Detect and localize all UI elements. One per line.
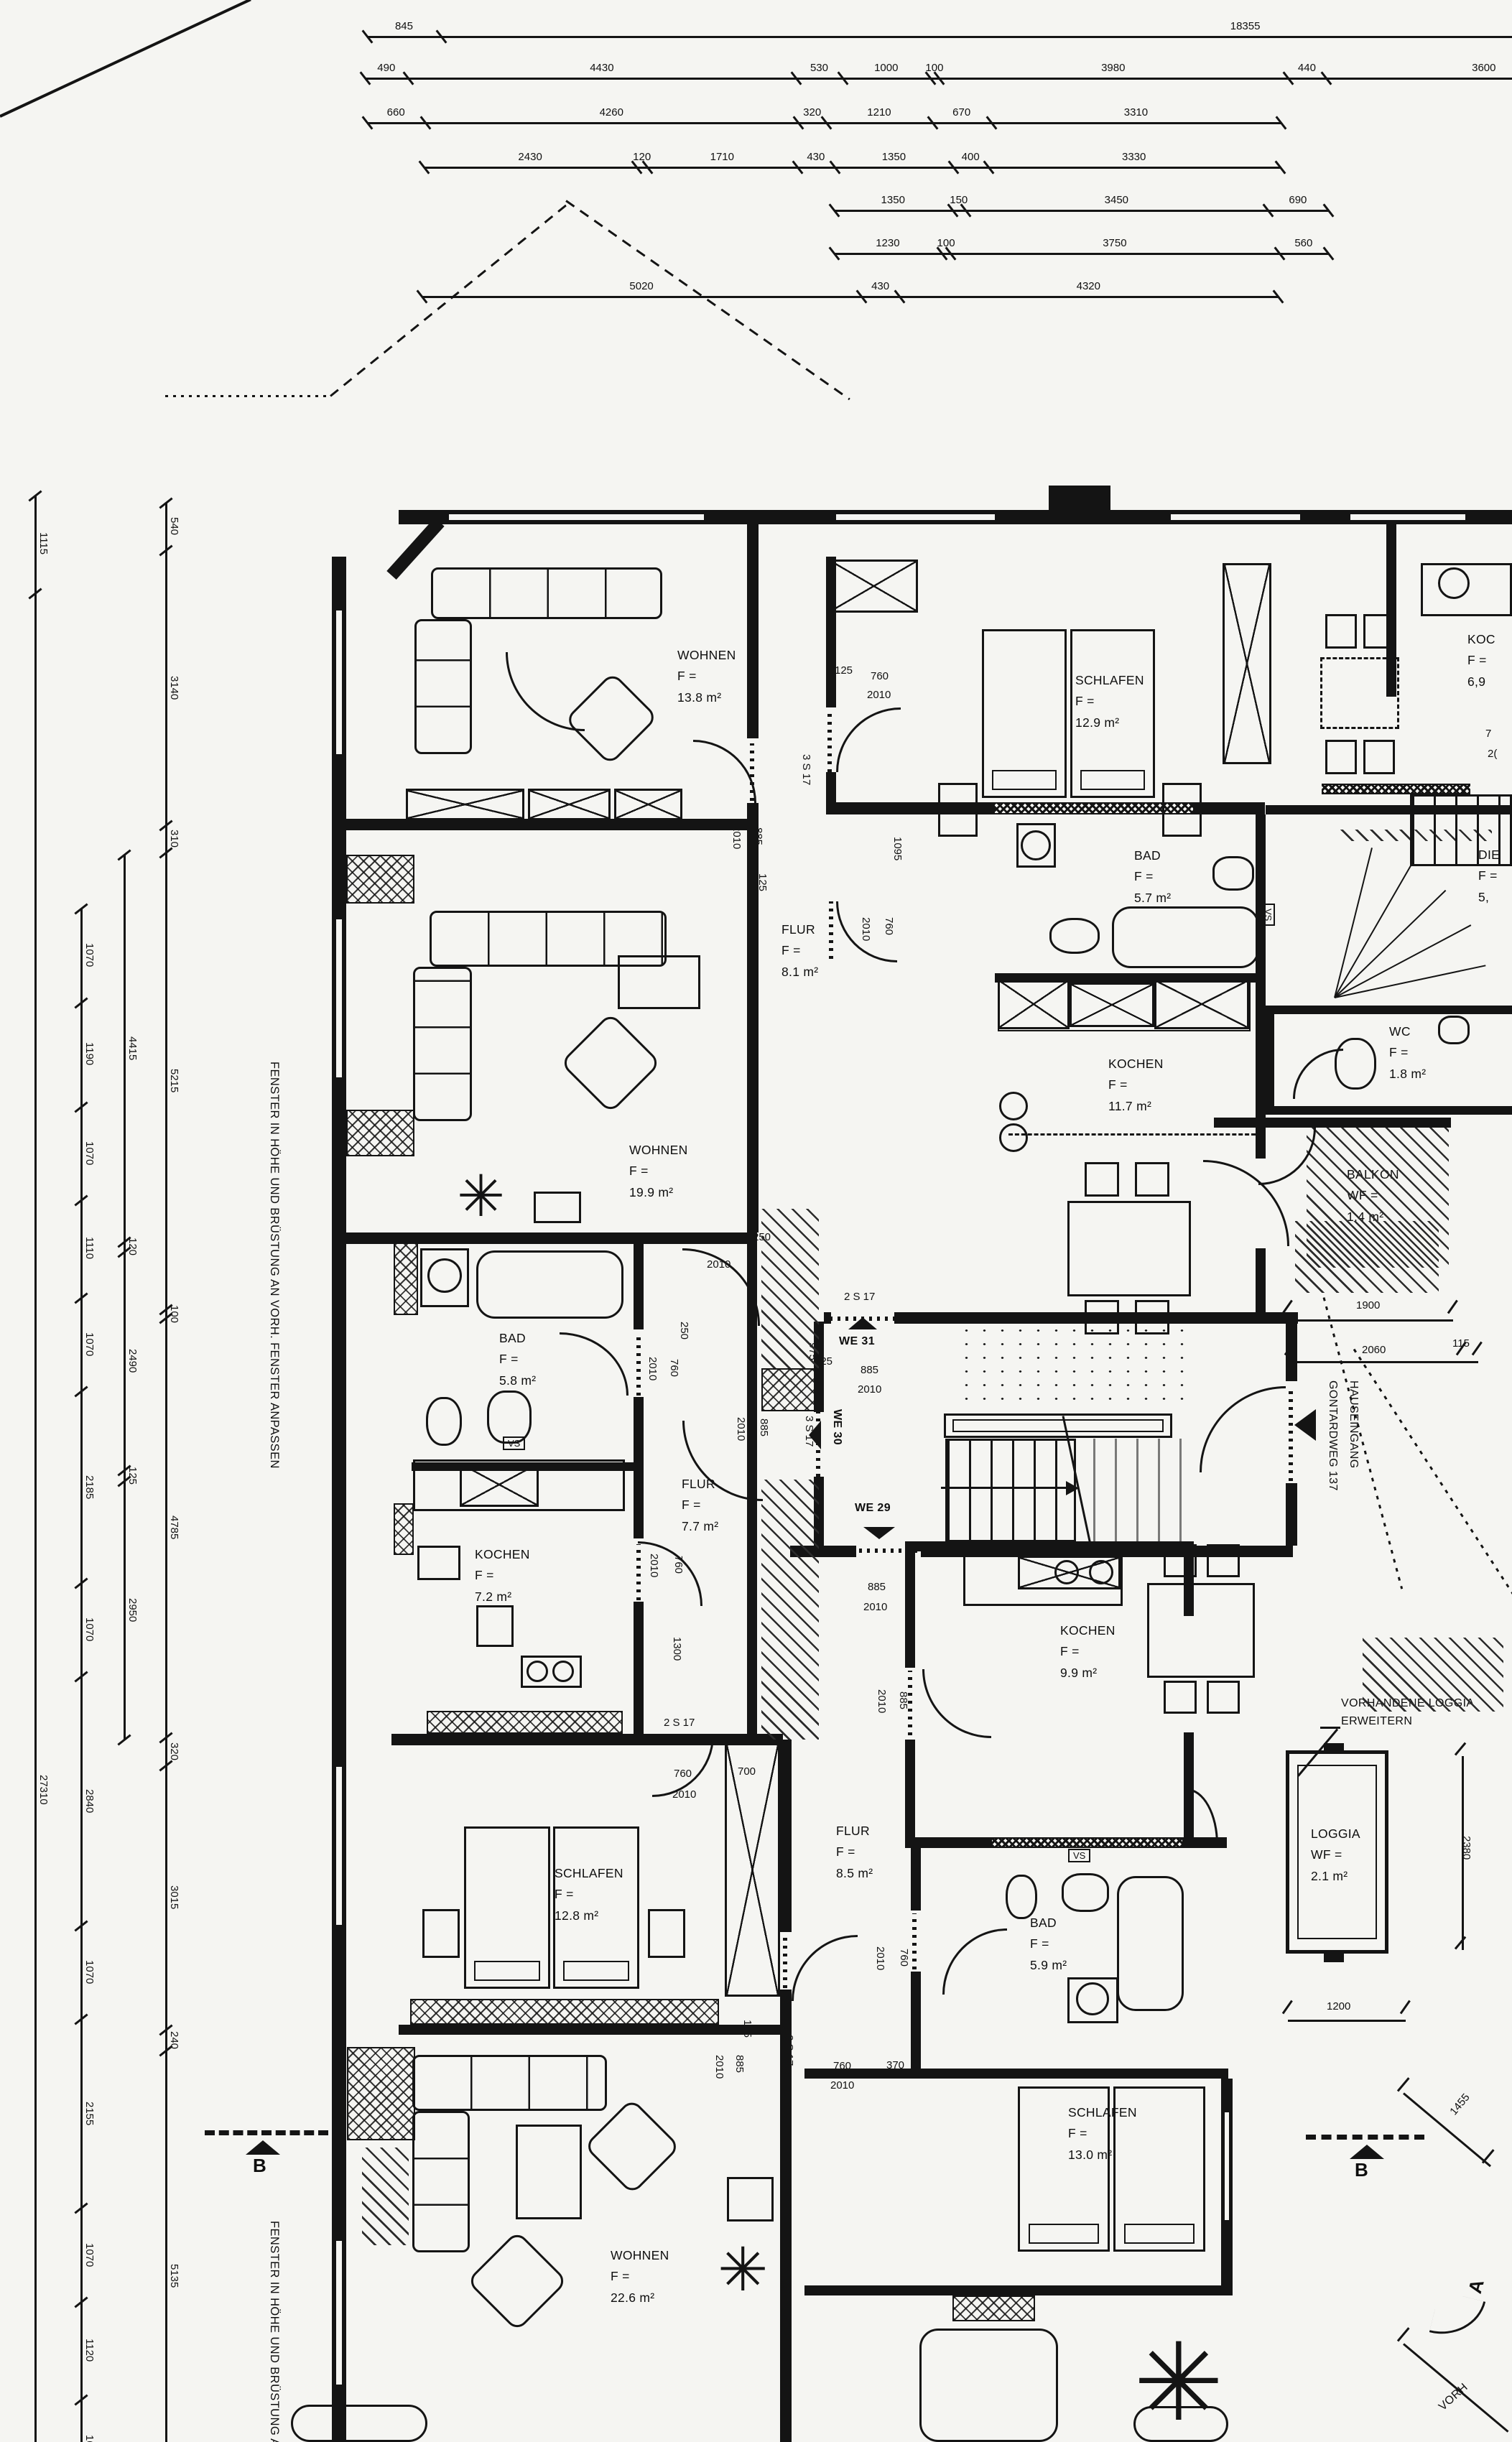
section-arrow-b-left-icon <box>246 2140 280 2155</box>
dim-label: 3 S 17 <box>804 1416 815 1447</box>
room-label-line: WOHNEN <box>611 2245 669 2266</box>
sofa <box>413 967 472 1121</box>
toilet <box>426 1397 462 1446</box>
room-label-line: 11.7 m² <box>1108 1096 1164 1117</box>
dim-value: 670 <box>952 107 970 118</box>
dim-value: 5215 <box>169 1069 180 1092</box>
crossed-box <box>830 560 918 613</box>
nightstand <box>422 1909 460 1958</box>
wall <box>399 2025 780 2035</box>
fenster-note-lower: FENSTER IN HÖHE UND BRÜSTUNG AN VORH. FE… <box>264 2221 283 2442</box>
loggia-tab <box>1324 1743 1344 1752</box>
dim-label: 2010 <box>830 2080 854 2091</box>
dim-tick <box>1472 1342 1483 1356</box>
kitchen-counter <box>1421 563 1512 616</box>
dim-value: 1115 <box>38 532 49 554</box>
dim-value: 1070 <box>84 2435 95 2442</box>
room-label-koc_partial: KOCF =6,9 <box>1467 629 1495 692</box>
dim-value: 1210 <box>867 107 891 118</box>
room-label-line: WOHNEN <box>629 1140 688 1161</box>
wall <box>1256 814 1266 1159</box>
dim-label: 2 S 17 <box>664 1717 695 1728</box>
toilet <box>1335 1038 1376 1090</box>
door-arc <box>560 1332 629 1396</box>
door-arc <box>1187 1788 1218 1844</box>
stove-burner <box>1054 1560 1079 1584</box>
door-sill <box>1289 1386 1293 1481</box>
chair <box>1085 1300 1119 1334</box>
dining-table <box>1067 1201 1191 1296</box>
room-label-line: F = <box>1389 1042 1426 1063</box>
room-label-line: KOCHEN <box>475 1544 530 1565</box>
door-arc <box>792 1935 858 2001</box>
chair <box>1135 1162 1169 1197</box>
dim-value: 530 <box>810 62 828 73</box>
dim-row-line <box>424 167 1280 169</box>
toilet <box>1006 1875 1037 1919</box>
crosshatch-shaft <box>952 2295 1035 2321</box>
sofa-partial <box>1133 2406 1228 2442</box>
armchair <box>560 1012 661 1113</box>
loggia-inner <box>1297 1765 1377 1939</box>
wall <box>911 1848 921 1911</box>
crosshatch-shaft <box>761 1368 819 1411</box>
dim-value: 540 <box>169 517 180 535</box>
room-label-line: F = <box>836 1842 873 1862</box>
window <box>1171 513 1300 521</box>
window <box>836 513 995 521</box>
dim-value: 4430 <box>590 62 613 73</box>
dim-row-line <box>834 210 1328 212</box>
dim-value: 400 <box>962 152 980 162</box>
room-label-line: 1.8 m² <box>1389 1064 1426 1085</box>
dim-label: 125 <box>835 665 853 676</box>
wall <box>905 1740 915 1848</box>
washer-drum <box>427 1258 462 1293</box>
armchair <box>583 2098 680 2195</box>
room-label-kochen117: KOCHENF =11.7 m² <box>1108 1054 1164 1117</box>
coffee-table <box>516 2125 582 2219</box>
bed <box>1018 2086 1110 2252</box>
door-sill <box>908 1671 912 1735</box>
dim-label: 2010 <box>875 1946 886 1970</box>
loggia-note-line2: ERWEITERN <box>1341 1713 1475 1731</box>
wall <box>905 1551 915 1668</box>
chair <box>1363 614 1395 649</box>
dim-value: 1000 <box>874 62 898 73</box>
dim-value: 2155 <box>84 2102 95 2125</box>
dim-tick <box>1397 2327 1410 2341</box>
dim-value: 310 <box>169 830 180 848</box>
dim-tick <box>1447 1300 1458 1314</box>
wall <box>804 2069 1228 2079</box>
dim-tick <box>1282 2000 1293 2015</box>
stair-flight <box>1093 1439 1187 1542</box>
nightstand <box>1162 783 1202 837</box>
dining-table <box>1147 1583 1255 1678</box>
door-sill <box>816 1412 820 1477</box>
dim-value: 560 <box>1294 238 1312 249</box>
dim-label: 885 <box>898 1691 909 1709</box>
bed <box>1070 629 1155 798</box>
floorplan-canvas: FENSTER IN HÖHE UND BRÜSTUNG AN VORH. FE… <box>0 0 1512 2442</box>
room-label-line: 5, <box>1478 887 1500 908</box>
dim-label: 1300 <box>672 1637 682 1661</box>
dim-value: 18355 <box>1230 21 1261 32</box>
door-arc <box>693 740 756 803</box>
crossed-box <box>725 1743 780 1997</box>
crosshatch-shaft <box>410 1999 719 2025</box>
dotted-line <box>165 395 330 397</box>
hatch-area <box>761 1480 819 1740</box>
room-label-bad58: BADF =5.8 m² <box>499 1328 536 1391</box>
wall <box>1049 486 1110 514</box>
dim-label: 1455 <box>1448 2092 1472 2117</box>
dim-value: 3140 <box>169 676 180 700</box>
dim-value: 1070 <box>84 943 95 967</box>
dim-label: 3 S 17 <box>801 754 812 785</box>
loggia-tab <box>1324 1952 1344 1962</box>
we30-marker: WE 30 <box>827 1409 845 1445</box>
dim-label: 885 <box>734 2055 745 2073</box>
room-label-kochen72: KOCHENF =7.2 m² <box>475 1544 530 1607</box>
dim-label: 2010 <box>858 1384 881 1395</box>
crossed-box <box>1223 563 1271 764</box>
stair-flight <box>945 1439 1076 1542</box>
room-label-line: 13.8 m² <box>677 687 736 708</box>
door-sill <box>829 901 833 959</box>
room-label-wohnen199: WOHNENF =19.9 m² <box>629 1140 688 1203</box>
dim-tick <box>1455 1742 1466 1756</box>
room-label-line: KOCHEN <box>1060 1620 1116 1641</box>
dim-tick <box>1482 2149 1495 2163</box>
room-label-line: 8.5 m² <box>836 1863 873 1884</box>
door-sill <box>827 711 832 772</box>
stove-burner <box>1089 1560 1113 1584</box>
insulated-wall <box>1322 784 1470 794</box>
dim-value: 3450 <box>1105 195 1128 205</box>
crossed-box <box>528 789 611 820</box>
wall <box>804 2285 1231 2295</box>
window <box>335 2241 343 2385</box>
room-label-line: F = <box>499 1349 536 1370</box>
chair <box>1164 1681 1197 1714</box>
door-sill <box>783 1935 787 1988</box>
room-label-line: F = <box>781 940 818 961</box>
room-label-line: F = <box>1134 866 1171 887</box>
wall <box>1256 1248 1266 1322</box>
insulated-wall <box>992 1837 1182 1848</box>
room-label-flur81: FLURF =8.1 m² <box>781 919 818 983</box>
dim-label: 2010 <box>867 690 891 700</box>
room-label-line: 7.7 m² <box>682 1516 718 1537</box>
sink <box>1062 1873 1109 1912</box>
dim-value: 430 <box>807 152 825 162</box>
door-arc <box>652 1735 714 1797</box>
sofa <box>412 2055 607 2111</box>
stair-balustrade-inner <box>952 1419 1164 1432</box>
section-a-line <box>1403 2343 1508 2432</box>
chair <box>1164 1544 1197 1577</box>
dim-value: 1230 <box>876 238 899 249</box>
room-label-line: F = <box>611 2266 669 2287</box>
sofa <box>430 911 667 967</box>
dim-value: 440 <box>1298 62 1316 73</box>
dim-value: 4415 <box>127 1036 138 1060</box>
room-label-line: F = <box>1467 650 1495 671</box>
bed <box>464 1826 550 1989</box>
dotted-diagonal <box>1353 1349 1512 1609</box>
dim-label: 125 <box>757 873 768 891</box>
stair-flight <box>1410 794 1512 866</box>
room-label-line: 5.8 m² <box>499 1370 536 1391</box>
bed <box>982 629 1067 798</box>
wall <box>634 1244 644 1329</box>
dim-value: 3600 <box>1472 62 1495 73</box>
bed <box>1113 2086 1205 2252</box>
dim-value: 320 <box>169 1742 180 1760</box>
dim-value: 845 <box>395 21 413 32</box>
dim-value: 1120 <box>84 2339 95 2362</box>
dim-row-line <box>834 253 1328 255</box>
window <box>335 1767 343 1925</box>
dim-tick <box>1455 1936 1466 1950</box>
crosshatch-shaft <box>394 1503 414 1555</box>
window <box>449 513 704 521</box>
dim-value: 1070 <box>84 1332 95 1356</box>
crosshatch-shaft <box>427 1711 623 1734</box>
chair <box>1207 1681 1240 1714</box>
chair <box>1085 1162 1119 1197</box>
sofa <box>412 2111 470 2252</box>
dashed-roof-line <box>565 200 850 400</box>
dim-tick <box>1397 2077 1410 2092</box>
window <box>1223 2112 1230 2220</box>
sink <box>487 1391 532 1444</box>
hatch-area <box>362 2148 409 2245</box>
wall <box>911 1972 921 2069</box>
wall <box>826 772 836 805</box>
crossed-box <box>614 789 682 820</box>
wall <box>346 819 748 830</box>
room-label-line: BAD <box>1134 845 1171 866</box>
dim-value: 660 <box>387 107 405 118</box>
room-label-wc18: WCF =1.8 m² <box>1389 1021 1426 1085</box>
dim-chain-line <box>34 496 37 2442</box>
dim-value: 1710 <box>710 152 734 162</box>
plant-icon: ✳ <box>718 2239 768 2300</box>
dim-label: 1900 <box>1356 1300 1380 1311</box>
room-label-line: F = <box>475 1565 530 1586</box>
room-label-line: BAD <box>499 1328 536 1349</box>
dim-line-2060 <box>1290 1361 1478 1363</box>
dim-value: 1070 <box>84 1960 95 1984</box>
dim-value: 2185 <box>84 1475 95 1499</box>
section-label-a: A <box>1464 2277 1489 2295</box>
bathtub <box>476 1250 623 1319</box>
dim-label: 760 <box>669 1359 680 1377</box>
hauseingang-arrow-icon <box>1294 1409 1316 1441</box>
room-label-bad59: BADF =5.9 m² <box>1030 1913 1067 1976</box>
wall <box>747 524 759 738</box>
dim-label: 2 S 17 <box>844 1291 875 1302</box>
door-sill <box>859 1549 921 1553</box>
bathtub <box>1117 1876 1184 2011</box>
hatch-area <box>1307 1128 1449 1268</box>
room-label-line: F = <box>677 666 736 687</box>
room-label-line: 7.2 m² <box>475 1587 530 1607</box>
room-label-flur85: FLURF =8.5 m² <box>836 1821 873 1884</box>
dim-line-1455 <box>1403 2092 1491 2167</box>
fridge <box>476 1605 514 1647</box>
room-label-line: 5.9 m² <box>1030 1955 1067 1976</box>
hatch-area <box>1363 1638 1503 1712</box>
dim-value: 27310 <box>38 1775 49 1805</box>
room-label-wohnen138: WOHNENF =13.8 m² <box>677 645 736 708</box>
sink <box>1438 1016 1470 1044</box>
fenster-note-upper: FENSTER IN HÖHE UND BRÜSTUNG AN VORH. FE… <box>264 1062 283 1469</box>
dim-value: 5135 <box>169 2264 180 2288</box>
room-label-line: F = <box>1108 1074 1164 1095</box>
chair <box>1207 1544 1240 1577</box>
dim-value: 4320 <box>1077 281 1100 292</box>
dim-label: 2010 <box>647 1357 658 1380</box>
insulated-wall <box>417 1232 633 1244</box>
room-label-line: FLUR <box>836 1821 873 1842</box>
door-sill <box>636 1334 641 1396</box>
crosshatch-shaft <box>346 855 414 904</box>
loggia-leader <box>1320 1727 1340 1729</box>
chair <box>1325 614 1357 649</box>
window <box>335 919 343 1077</box>
chair <box>1325 740 1357 774</box>
room-label-bad57: BADF =5.7 m² <box>1134 845 1171 909</box>
crossed-box <box>406 789 524 820</box>
entry-mat <box>957 1324 1187 1408</box>
hatch-area <box>761 1209 819 1368</box>
boundary-line <box>0 0 251 118</box>
dim-value: 3015 <box>169 1885 180 1909</box>
room-label-line: 8.1 m² <box>781 962 818 983</box>
wall <box>747 803 759 1232</box>
washer-drum <box>1076 1982 1109 2015</box>
room-label-line: 6,9 <box>1467 672 1495 692</box>
wall <box>905 1541 1192 1551</box>
dim-value: 1190 <box>84 1042 95 1065</box>
nightstand <box>648 1909 685 1958</box>
sink <box>1212 856 1254 891</box>
door-arc <box>1200 1386 1286 1472</box>
bed <box>553 1826 639 1989</box>
dim-label: 2010 <box>876 1689 887 1713</box>
kitchen-divider <box>1008 1133 1256 1136</box>
dim-label: 1095 <box>892 837 903 860</box>
dim-line-1200 <box>1288 2020 1406 2022</box>
wall <box>1286 1483 1297 1546</box>
room-label-wohnen226: WOHNENF =22.6 m² <box>611 2245 669 2308</box>
dim-value: 2840 <box>84 1789 95 1813</box>
wall <box>905 1837 992 1848</box>
stair-winder-line <box>1334 890 1446 998</box>
sofa <box>414 619 472 754</box>
wall <box>1266 1006 1512 1014</box>
toilet <box>1049 918 1100 954</box>
dim-label: 2060 <box>1362 1345 1386 1355</box>
we29-marker: WE 29 <box>855 1500 891 1518</box>
section-line-b-left <box>205 2130 328 2135</box>
dim-line-1900 <box>1288 1319 1453 1322</box>
section-arrow-b-right-icon <box>1350 2145 1384 2159</box>
stove-burner <box>999 1123 1028 1152</box>
dim-value: 3330 <box>1122 152 1146 162</box>
dim-label: 7 <box>1485 728 1491 739</box>
room-label-line: F = <box>1060 1641 1116 1662</box>
room-label-line: FLUR <box>781 919 818 940</box>
shaft-label: VS <box>1068 1849 1090 1862</box>
dim-value: 430 <box>871 281 889 292</box>
room-label-line: BAD <box>1030 1913 1067 1933</box>
door-sill <box>830 1317 894 1321</box>
dashed-roof-line <box>330 200 572 396</box>
section-a-arrow-icon <box>1429 2290 1486 2344</box>
bathtub <box>1112 906 1259 968</box>
room-label-line: F = <box>682 1495 718 1515</box>
room-label-line: 19.9 m² <box>629 1182 688 1203</box>
dim-value: 3980 <box>1101 62 1125 73</box>
dim-value: 2490 <box>127 1349 138 1373</box>
room-label-line: 5.7 m² <box>1134 888 1171 909</box>
dim-value: 1070 <box>84 1617 95 1641</box>
dim-label: 885 <box>868 1582 886 1592</box>
we29-arrow-icon <box>863 1527 895 1539</box>
dim-label: 2( <box>1488 748 1497 759</box>
nightstand <box>938 783 978 837</box>
dim-line-2380 <box>1462 1756 1464 1950</box>
door-sill <box>912 1913 917 1969</box>
dim-value: 1070 <box>84 1141 95 1165</box>
room-label-line: F = <box>1478 865 1500 886</box>
room-label-line: 9.9 m² <box>1060 1663 1116 1684</box>
section-label-b-left: B <box>253 2155 266 2177</box>
window <box>335 610 343 754</box>
room-label-line: F = <box>1030 1933 1067 1954</box>
we31-marker: WE 31 <box>839 1333 875 1351</box>
dim-chain-line <box>165 503 167 2442</box>
wall <box>634 1602 644 1740</box>
room-label-line: WC <box>1389 1021 1426 1042</box>
dim-row-line <box>422 296 1278 298</box>
window <box>1350 513 1465 521</box>
wall <box>780 1990 792 2442</box>
dim-value: 1350 <box>881 195 905 205</box>
room-label-line: KOC <box>1467 629 1495 650</box>
chair <box>1363 740 1395 774</box>
dim-label: 1200 <box>1327 2001 1350 2012</box>
dim-row-line <box>367 36 1512 38</box>
sofa-partial <box>291 2405 427 2442</box>
dim-value: 1350 <box>882 152 906 162</box>
sofa-partial <box>919 2329 1058 2442</box>
dim-value: 2430 <box>518 152 542 162</box>
stair-winder-line <box>1334 848 1373 998</box>
wall <box>1266 1106 1512 1115</box>
dining-table <box>1320 657 1399 729</box>
dim-chain-line <box>124 855 126 1740</box>
chair <box>1135 1300 1169 1334</box>
tv-table <box>534 1192 581 1223</box>
dim-value: 4260 <box>600 107 623 118</box>
dim-label: 760 <box>871 671 889 682</box>
